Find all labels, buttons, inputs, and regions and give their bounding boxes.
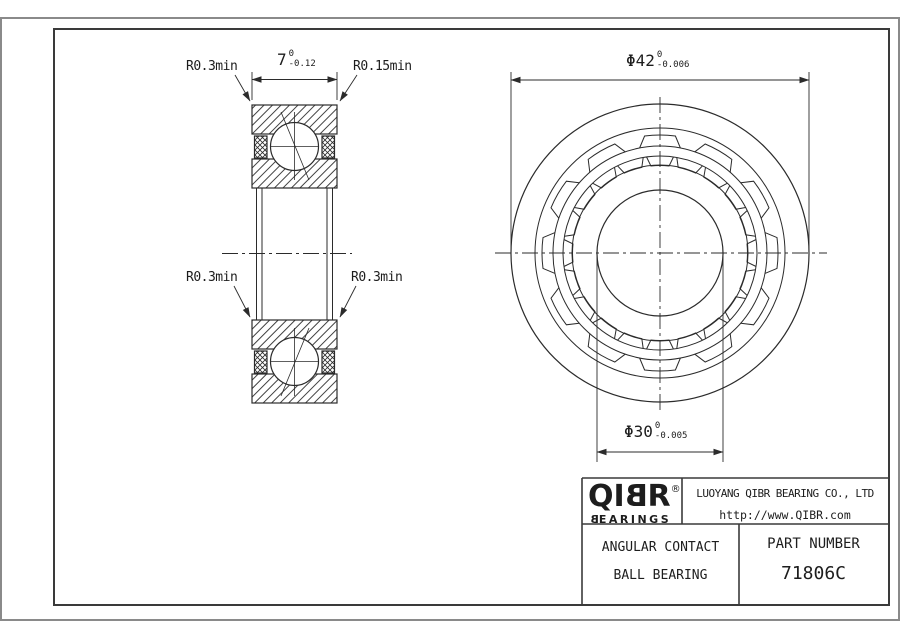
bore-tolerance: 0 -0.005 bbox=[655, 421, 688, 442]
bore-value: Φ30 bbox=[624, 424, 653, 440]
logo-subtitle: BEARINGS bbox=[588, 513, 681, 526]
company-website: http://www.QIBR.com bbox=[684, 508, 886, 522]
drawing-sheet: R0.3min 7 0 -0.12 R0.15min R0.3min R0.3m… bbox=[0, 0, 900, 636]
width-dimension bbox=[252, 72, 337, 100]
od-dimension-text: Φ42 0 -0.006 bbox=[626, 53, 689, 71]
width-tolerance: 0 -0.12 bbox=[289, 49, 316, 70]
width-value: 7 bbox=[277, 52, 287, 68]
bore-lines bbox=[257, 188, 333, 320]
part-number-label: PART NUMBER bbox=[741, 536, 886, 552]
registered-mark: ® bbox=[671, 484, 681, 495]
width-dimension-text: 7 0 -0.12 bbox=[277, 52, 316, 70]
section-bottom bbox=[252, 320, 337, 403]
product-name-line1: ANGULAR CONTACT bbox=[584, 540, 737, 555]
logo-wordmark: QIBR® bbox=[588, 482, 681, 512]
part-number-value: 71806C bbox=[741, 563, 886, 584]
company-logo: QIBR® BEARINGS bbox=[588, 482, 681, 526]
fillet-label-mid-left: R0.3min bbox=[186, 270, 237, 285]
fillet-label-mid-right: R0.3min bbox=[351, 270, 402, 285]
section-view bbox=[222, 72, 357, 403]
fillet-label-top-left: R0.3min bbox=[186, 59, 237, 74]
bore-dimension-text: Φ30 0 -0.005 bbox=[624, 424, 687, 442]
section-top bbox=[252, 105, 337, 188]
product-name-line2: BALL BEARING bbox=[584, 568, 737, 583]
company-name: LUOYANG QIBR BEARING CO., LTD bbox=[684, 487, 886, 500]
od-tolerance: 0 -0.006 bbox=[657, 50, 690, 71]
fillet-label-top-right: R0.15min bbox=[353, 59, 412, 74]
od-value: Φ42 bbox=[626, 53, 655, 69]
front-view bbox=[495, 72, 827, 462]
